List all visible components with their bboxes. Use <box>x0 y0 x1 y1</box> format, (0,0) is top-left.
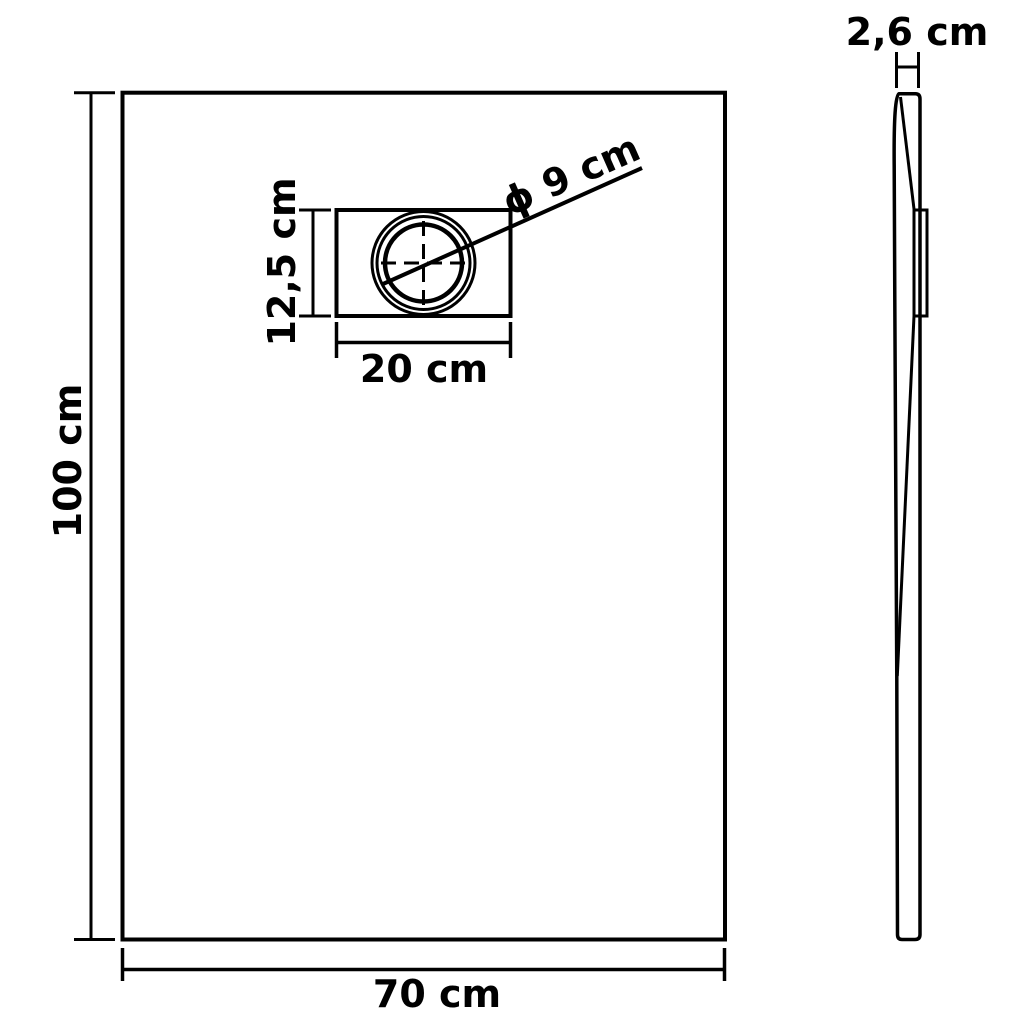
front-view: 100 cm 70 cm <box>46 93 725 1016</box>
drain-width-dimension-label: 20 cm <box>360 347 488 391</box>
width-dimension-label: 70 cm <box>373 972 501 1016</box>
side-slope-line-lower <box>897 316 914 676</box>
side-view: 2,6 cm <box>846 10 989 940</box>
drain-width-dimension: 20 cm <box>337 322 511 391</box>
tray-side-outline <box>894 94 920 940</box>
dimension-diagram: 100 cm 70 cm ϕ 9 cm <box>0 0 1024 1024</box>
drain-height-dimension: 12,5 cm <box>260 177 331 346</box>
thickness-dimension-label: 2,6 cm <box>846 10 989 54</box>
height-dimension-label: 100 cm <box>46 384 90 539</box>
height-dimension: 100 cm <box>46 93 115 940</box>
drain-diameter-label: ϕ 9 cm <box>496 126 647 225</box>
drain-detail: ϕ 9 cm 12,5 cm 20 cm <box>260 126 646 391</box>
tray-front-outline <box>123 93 726 940</box>
diagram-canvas: 100 cm 70 cm ϕ 9 cm <box>0 0 1024 1024</box>
side-slope-line-upper <box>901 97 915 209</box>
width-dimension: 70 cm <box>123 948 725 1016</box>
thickness-dimension: 2,6 cm <box>846 10 989 88</box>
drain-height-dimension-label: 12,5 cm <box>260 177 304 346</box>
